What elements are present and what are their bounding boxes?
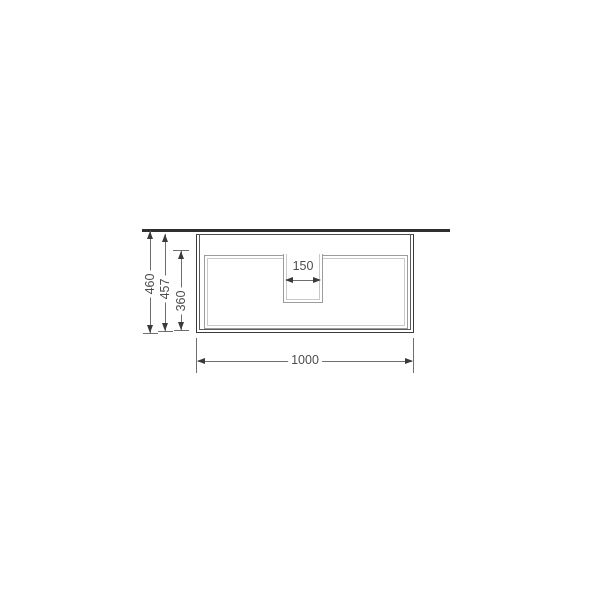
countertop-line: [142, 229, 450, 232]
arrow-down-icon: [162, 323, 168, 331]
arrow-right-icon: [313, 277, 321, 283]
arrow-down-icon: [178, 322, 184, 330]
dim-carcass-height-label: 457: [159, 276, 173, 303]
arrow-down-icon: [147, 325, 153, 333]
arrow-up-icon: [178, 251, 184, 259]
arrow-up-icon: [147, 231, 153, 239]
dim-overall-height-label: 460: [144, 271, 158, 298]
dim-overall-width-label: 1000: [288, 354, 322, 368]
dim-tick: [143, 333, 158, 334]
arrow-left-icon: [197, 358, 205, 364]
dim-drawer-height-label: 360: [175, 288, 189, 315]
technical-drawing-canvas: 460 457 360 150 1000: [0, 0, 600, 600]
arrow-right-icon: [405, 358, 413, 364]
dim-tick: [174, 330, 189, 331]
dim-tick: [158, 331, 173, 332]
dim-extension-line-right: [413, 338, 414, 373]
arrow-up-icon: [162, 234, 168, 242]
dim-extension-line-left: [196, 338, 197, 373]
dim-cutout-width-label: 150: [290, 260, 317, 274]
arrow-left-icon: [285, 277, 293, 283]
